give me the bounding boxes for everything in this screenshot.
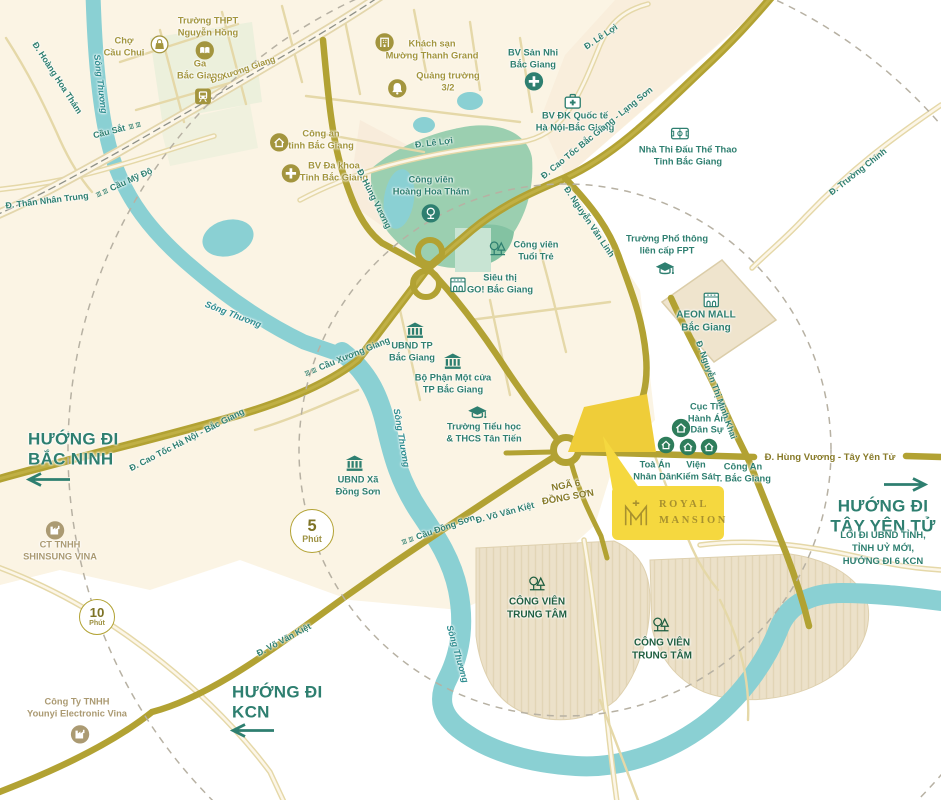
nha-thi-dau-the-thao: Nhà Thi Đấu Thể Thao Tỉnh Bắc Giang — [639, 144, 737, 167]
bank-icon — [345, 453, 365, 473]
nha-thi-dau-the-thao-label: Nhà Thi Đấu Thể Thao Tỉnh Bắc Giang — [639, 144, 737, 167]
truong-thpt-nguyen-hong-label: Trường THPT Nguyễn Hồng — [178, 15, 238, 38]
cong-ty-younyi-electronic-vina: Công Ty TNHH Younyi Electronic Vina — [27, 696, 127, 719]
vien-kiem-sat: Viện Kiểm Sát — [676, 459, 716, 482]
huong-di-bac-ninh-arrow-left-icon — [24, 472, 72, 493]
aeon-mall-bac-giang-label: AEON MALL Bắc Giang — [676, 310, 735, 335]
house-icon — [679, 438, 697, 456]
quang-truong-3-2: Quảng trường 3/2 — [416, 70, 479, 93]
d-cao-toc-ha-noi-bac-giang-label: Đ. Cao Tốc Hà Nội - Bắc Giang — [128, 406, 247, 474]
cap-icon — [655, 259, 675, 279]
d-le-loi-1-label: Đ. Lê Lợi — [414, 135, 453, 151]
sieu-thi-go-bac-giang: Siêu thị GO! Bắc Giang — [467, 272, 533, 295]
cong-vien-trung-tam-1-label: CÔNG VIÊN TRUNG TÂM — [507, 597, 567, 622]
huong-di-tay-yen-tu-arrow-right-icon — [882, 477, 930, 498]
aeon-mall-bac-giang: AEON MALL Bắc Giang — [676, 310, 735, 335]
royal-mansion-logo-icon — [621, 498, 651, 528]
house-icon — [700, 438, 718, 456]
song-thuong-4: Sông Thương — [443, 624, 470, 684]
cong-an-tinh-bac-giang: Công an tỉnh Bắc Giang — [288, 128, 354, 151]
trees-icon — [651, 614, 671, 634]
cau-my-do-label: Cầu Mỹ Độ — [108, 165, 154, 194]
cong-vien-trung-tam-1: CÔNG VIÊN TRUNG TÂM — [507, 597, 567, 622]
badge-5-phut: 5Phút — [290, 509, 334, 553]
cross-icon — [281, 163, 301, 183]
song-thuong-4-label: Sông Thương — [443, 624, 470, 684]
song-thuong-2-label: Sông Thương — [203, 299, 263, 331]
song-thuong-2: Sông Thương — [203, 299, 263, 331]
home-icon — [269, 132, 289, 152]
truong-tieu-hoc-tan-tien-label: Trường Tiểu học & THCS Tân Tiến — [446, 421, 521, 444]
trees-icon — [527, 573, 547, 593]
d-hoang-hoa-tham-label: Đ. Hoàng Hoa Thám — [30, 40, 85, 116]
house-icon — [657, 436, 675, 454]
treefill-icon — [421, 203, 441, 223]
cho-cau-chui: Chợ Cầu Chui — [104, 35, 145, 58]
trees-icon — [488, 238, 508, 258]
d-le-loi-1: Đ. Lê Lợi — [414, 135, 453, 151]
truong-pho-thong-fpt-label: Trường Phổ thông liên cấp FPT — [626, 233, 708, 256]
house-icon — [671, 418, 691, 438]
cong-vien-hoang-hoa-tham: Công viên Hoàng Hoa Thám — [393, 174, 469, 197]
cong-vien-tuoi-tre: Công viên Tuổi Trẻ — [514, 239, 559, 262]
cong-an-t-bac-giang-label: Công An T. Bắc Giang — [715, 461, 771, 484]
cau-sat-label: Cầu Sắt — [92, 123, 126, 142]
factory-icon — [70, 724, 90, 744]
song-thuong-3: Sông Thương — [390, 408, 411, 469]
d-nguyen-van-linh-label: Đ. Nguyễn Văn Linh — [561, 184, 617, 259]
nga-6-dong-son: NGÃ 6 ĐỒNG SƠN — [539, 476, 595, 508]
nga-6-dong-son-label: NGÃ 6 ĐỒNG SƠN — [539, 476, 595, 508]
song-thuong-1-label: Sông Thương — [91, 54, 109, 114]
d-vo-van-kiet-1-label: Đ. Võ Văn Kiệt — [475, 500, 536, 526]
huong-di-tay-yen-tu-subtext: LỐI ĐI UBND TỈNH, TỈNH UỶ MỚI, HƯỚNG ĐI … — [840, 530, 926, 568]
song-thuong-1: Sông Thương — [91, 54, 109, 114]
bank-icon — [443, 351, 463, 371]
cross-icon — [524, 71, 544, 91]
huong-di-kcn: HƯỚNG ĐI KCN — [232, 683, 323, 724]
ubnd-tp-bac-giang: UBND TP Bắc Giang — [389, 340, 435, 363]
song-thuong-3-label: Sông Thương — [390, 408, 411, 469]
cau-xuong-giang-label: Cầu Xương Giang — [317, 335, 391, 374]
d-vo-van-kiet-2-label: Đ. Võ Văn Kiệt — [255, 621, 313, 659]
ubnd-tp-bac-giang-label: UBND TP Bắc Giang — [389, 340, 435, 363]
mall-icon — [448, 274, 468, 294]
train-icon — [193, 86, 213, 106]
royal-mansion-name-line1: ROYAL — [659, 497, 728, 513]
badge-5-phut-unit: Phút — [302, 535, 322, 543]
bridge-icon — [93, 184, 110, 201]
ct-tnhh-shinsung-vina: CT TNHH SHINSUNG VINA — [23, 539, 97, 562]
truong-thpt-nguyen-hong: Trường THPT Nguyễn Hồng — [178, 15, 238, 38]
cong-vien-tuoi-tre-label: Công viên Tuổi Trẻ — [514, 239, 559, 262]
huong-di-tay-yen-tu-subtext-label: LỐI ĐI UBND TỈNH, TỈNH UỶ MỚI, HƯỚNG ĐI … — [840, 530, 926, 568]
badge-5-phut-value: 5 — [307, 519, 316, 535]
factory-icon — [45, 520, 65, 540]
cong-vien-hoang-hoa-tham-label: Công viên Hoàng Hoa Thám — [393, 174, 469, 197]
d-hoang-hoa-tham: Đ. Hoàng Hoa Thám — [30, 40, 85, 116]
d-vo-van-kiet-1: Đ. Võ Văn Kiệt — [475, 500, 536, 526]
map-labels-layer: Chợ Cầu ChuiTrường THPT Nguyễn HồngGa Bắ… — [0, 0, 941, 800]
cong-vien-trung-tam-2: CÔNG VIÊN TRUNG TÂM — [632, 638, 692, 663]
mall-icon — [701, 289, 721, 309]
hotel-icon — [375, 32, 395, 52]
d-cao-toc-ha-noi-bac-giang: Đ. Cao Tốc Hà Nội - Bắc Giang — [128, 406, 247, 474]
d-hung-vuong-label: Đ. Hùng Vương — [354, 167, 393, 230]
d-le-loi-2: Đ. Lê Lợi — [582, 22, 620, 52]
bank-icon — [405, 320, 425, 340]
bo-phan-mot-cua: Bộ Phận Một cửa TP Bắc Giang — [415, 372, 491, 395]
huong-di-bac-ninh: HƯỚNG ĐI BẮC NINH — [28, 430, 119, 471]
royal-mansion-callout: ROYAL MANSION — [612, 486, 724, 540]
toa-an-nhan-dan: Toà Án Nhân Dân — [633, 459, 676, 482]
bag-icon — [150, 34, 170, 54]
bridge-icon — [399, 532, 416, 549]
ubnd-xa-dong-son-label: UBND Xã Đồng Sơn — [336, 474, 381, 497]
khach-san-muong-thanh-grand-label: Khách sạn Mường Thanh Grand — [386, 38, 479, 61]
toa-an-nhan-dan-label: Toà Án Nhân Dân — [633, 459, 676, 482]
bv-san-nhi-bac-giang: BV Sản Nhi Bắc Giang — [508, 47, 558, 70]
royal-mansion-name-line2: MANSION — [659, 513, 728, 529]
d-than-nhan-trung: Đ. Thân Nhân Trung — [5, 190, 89, 211]
d-nguyen-van-linh: Đ. Nguyễn Văn Linh — [561, 184, 617, 259]
truong-tieu-hoc-tan-tien: Trường Tiểu học & THCS Tân Tiến — [446, 421, 521, 444]
stadium-icon — [670, 123, 690, 143]
cong-an-tinh-bac-giang-label: Công an tỉnh Bắc Giang — [288, 128, 354, 151]
cau-sat: Cầu Sắt — [92, 118, 142, 142]
bo-phan-mot-cua-label: Bộ Phận Một cửa TP Bắc Giang — [415, 372, 491, 395]
vien-kiem-sat-label: Viện Kiểm Sát — [676, 459, 716, 482]
d-hung-vuong-tay-yen-tu: Đ. Hùng Vương - Tây Yên Tử — [765, 452, 896, 464]
cau-xuong-giang: Cầu Xương Giang — [302, 334, 392, 380]
cau-my-do: Cầu Mỹ Độ — [93, 165, 154, 202]
cau-dong-son-label: Cầu Đồng Sơn — [415, 512, 477, 542]
badge-10-phut: 10Phút — [79, 599, 115, 635]
d-truong-chinh-label: Đ. Trường Chinh — [827, 146, 889, 198]
ubnd-xa-dong-son: UBND Xã Đồng Sơn — [336, 474, 381, 497]
d-vo-van-kiet-2: Đ. Võ Văn Kiệt — [255, 621, 313, 659]
badge-10-phut-unit: Phút — [89, 620, 105, 627]
bv-san-nhi-bac-giang-label: BV Sản Nhi Bắc Giang — [508, 47, 558, 70]
huong-di-kcn-arrow-left-icon — [228, 723, 276, 744]
cap-icon — [467, 403, 487, 423]
cong-an-t-bac-giang: Công An T. Bắc Giang — [715, 461, 771, 484]
cau-dong-son: Cầu Đồng Sơn — [399, 511, 476, 549]
location-map: Chợ Cầu ChuiTrường THPT Nguyễn HồngGa Bắ… — [0, 0, 941, 800]
d-hung-vuong: Đ. Hùng Vương — [354, 167, 393, 230]
cho-cau-chui-label: Chợ Cầu Chui — [104, 35, 145, 58]
huong-di-bac-ninh-label: HƯỚNG ĐI BẮC NINH — [28, 430, 119, 471]
quang-truong-3-2-label: Quảng trường 3/2 — [416, 70, 479, 93]
ct-tnhh-shinsung-vina-label: CT TNHH SHINSUNG VINA — [23, 539, 97, 562]
huong-di-kcn-label: HƯỚNG ĐI KCN — [232, 683, 323, 724]
medkit-icon — [563, 91, 583, 111]
book-icon — [195, 40, 215, 60]
royal-mansion-name: ROYAL MANSION — [659, 497, 728, 530]
truong-pho-thong-fpt: Trường Phổ thông liên cấp FPT — [626, 233, 708, 256]
cong-ty-younyi-electronic-vina-label: Công Ty TNHH Younyi Electronic Vina — [27, 696, 127, 719]
sieu-thi-go-bac-giang-label: Siêu thị GO! Bắc Giang — [467, 272, 533, 295]
cong-vien-trung-tam-2-label: CÔNG VIÊN TRUNG TÂM — [632, 638, 692, 663]
d-truong-chinh: Đ. Trường Chinh — [827, 146, 889, 198]
bridge-icon — [126, 118, 142, 134]
bridge-icon — [302, 363, 319, 380]
d-le-loi-2-label: Đ. Lê Lợi — [582, 22, 620, 52]
d-than-nhan-trung-label: Đ. Thân Nhân Trung — [5, 190, 89, 211]
d-hung-vuong-tay-yen-tu-label: Đ. Hùng Vương - Tây Yên Tử — [765, 452, 896, 464]
khach-san-muong-thanh-grand: Khách sạn Mường Thanh Grand — [386, 38, 479, 61]
bell-icon — [387, 78, 407, 98]
